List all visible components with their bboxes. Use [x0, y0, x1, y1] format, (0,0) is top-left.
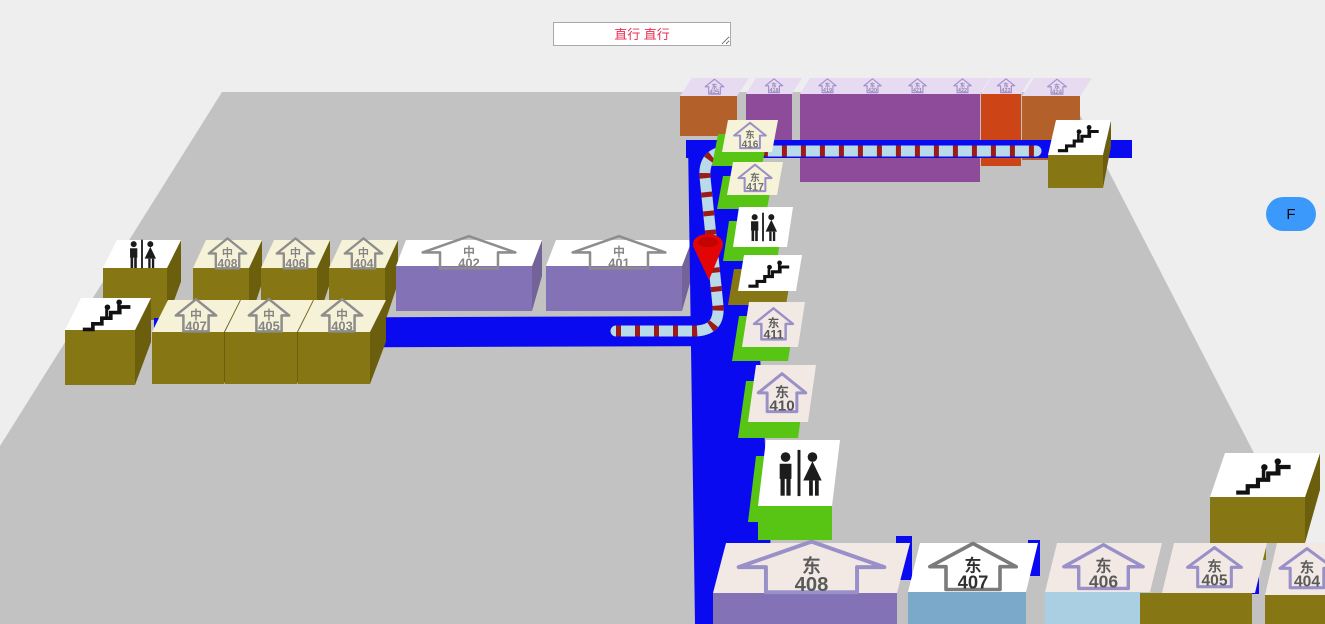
room-label-number: 420	[868, 88, 877, 94]
room-label-number: 404	[354, 257, 374, 271]
room-label-number: 402	[458, 256, 479, 271]
room-center-403[interactable]: 中403	[298, 299, 386, 384]
room-label-number: 423	[1001, 88, 1010, 94]
room-label-number: 410	[769, 398, 794, 415]
toilet-box-east-lower-front	[758, 506, 832, 540]
room-label-number: 425	[710, 90, 721, 96]
room-center-405-front	[225, 332, 297, 384]
room-east-407[interactable]: 东407	[908, 543, 1038, 624]
room-label-number: 417	[746, 181, 764, 193]
room-label-number: 418	[769, 88, 778, 94]
floor-selector-button[interactable]: F	[1266, 197, 1316, 231]
room-east-421-front	[890, 94, 935, 182]
room-label-number: 403	[331, 319, 352, 334]
room-east-420-front	[845, 94, 890, 182]
room-label-number: 404	[1294, 574, 1320, 591]
room-east-406-front	[1045, 592, 1150, 624]
room-label-number: 406	[1089, 571, 1118, 591]
room-label-number: 416	[742, 139, 759, 150]
room-center-401-front	[546, 266, 682, 311]
stairs-box-bottom-right-front	[1210, 497, 1305, 543]
room-label-number: 406	[286, 257, 306, 271]
room-label-number: 401	[608, 256, 629, 271]
directions-input[interactable]: 直行 直行	[553, 22, 731, 46]
room-label-number: 405	[258, 319, 279, 334]
room-label-number: 408	[795, 574, 829, 596]
room-label-number: 405	[1201, 573, 1227, 590]
room-label-number: 424	[1052, 90, 1063, 96]
room-label-number: 407	[958, 571, 989, 592]
room-east-419-front	[800, 94, 845, 182]
room-center-402-front	[396, 266, 532, 311]
room-center-407-front	[152, 332, 224, 384]
room-label-number: 408	[218, 257, 238, 271]
stairs-box-center-front	[65, 330, 135, 385]
stairs-box-top-right[interactable]	[1048, 120, 1111, 188]
room-label-number: 422	[958, 88, 967, 94]
room-label-number: 407	[185, 319, 206, 334]
room-center-403-front	[298, 332, 370, 384]
stairs-box-bottom-right[interactable]	[1210, 453, 1320, 543]
room-east-405-front	[1140, 593, 1252, 624]
stairs-box-center[interactable]	[65, 298, 151, 385]
stairs-box-top-right-front	[1048, 155, 1103, 188]
room-east-408-front	[713, 593, 897, 624]
room-east-408[interactable]: 东408	[713, 542, 910, 624]
room-center-401[interactable]: 中401	[546, 236, 692, 311]
indoor-map-app: 东425东418东419东420东421东422东423东424中408中406…	[0, 0, 1325, 624]
room-label-number: 421	[913, 88, 922, 94]
room-label-number: 419	[823, 88, 832, 94]
room-label-number: 411	[763, 328, 783, 342]
room-center-402[interactable]: 中402	[396, 236, 542, 311]
room-east-422-front	[935, 94, 980, 182]
map-canvas: 东425东418东419东420东421东422东423东424中408中406…	[0, 0, 1325, 624]
room-east-404-front	[1265, 595, 1325, 624]
room-east-407-front	[908, 592, 1026, 624]
